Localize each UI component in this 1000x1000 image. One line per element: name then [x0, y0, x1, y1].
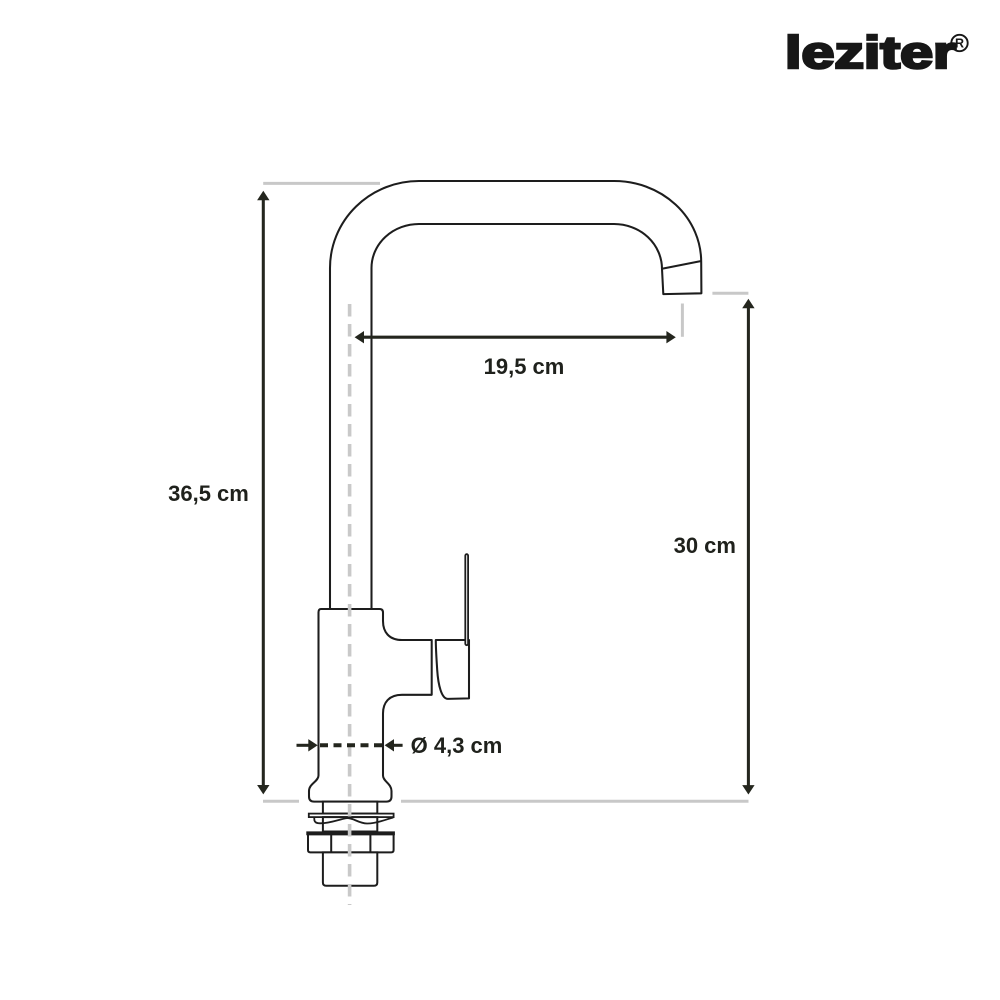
svg-text:19,5 cm: 19,5 cm — [484, 354, 565, 379]
svg-text:R: R — [955, 37, 964, 51]
svg-text:leziter: leziter — [785, 27, 956, 78]
svg-text:Ø 4,3 cm: Ø 4,3 cm — [411, 733, 503, 758]
svg-text:36,5 cm: 36,5 cm — [168, 481, 249, 506]
svg-text:30 cm: 30 cm — [674, 533, 736, 558]
